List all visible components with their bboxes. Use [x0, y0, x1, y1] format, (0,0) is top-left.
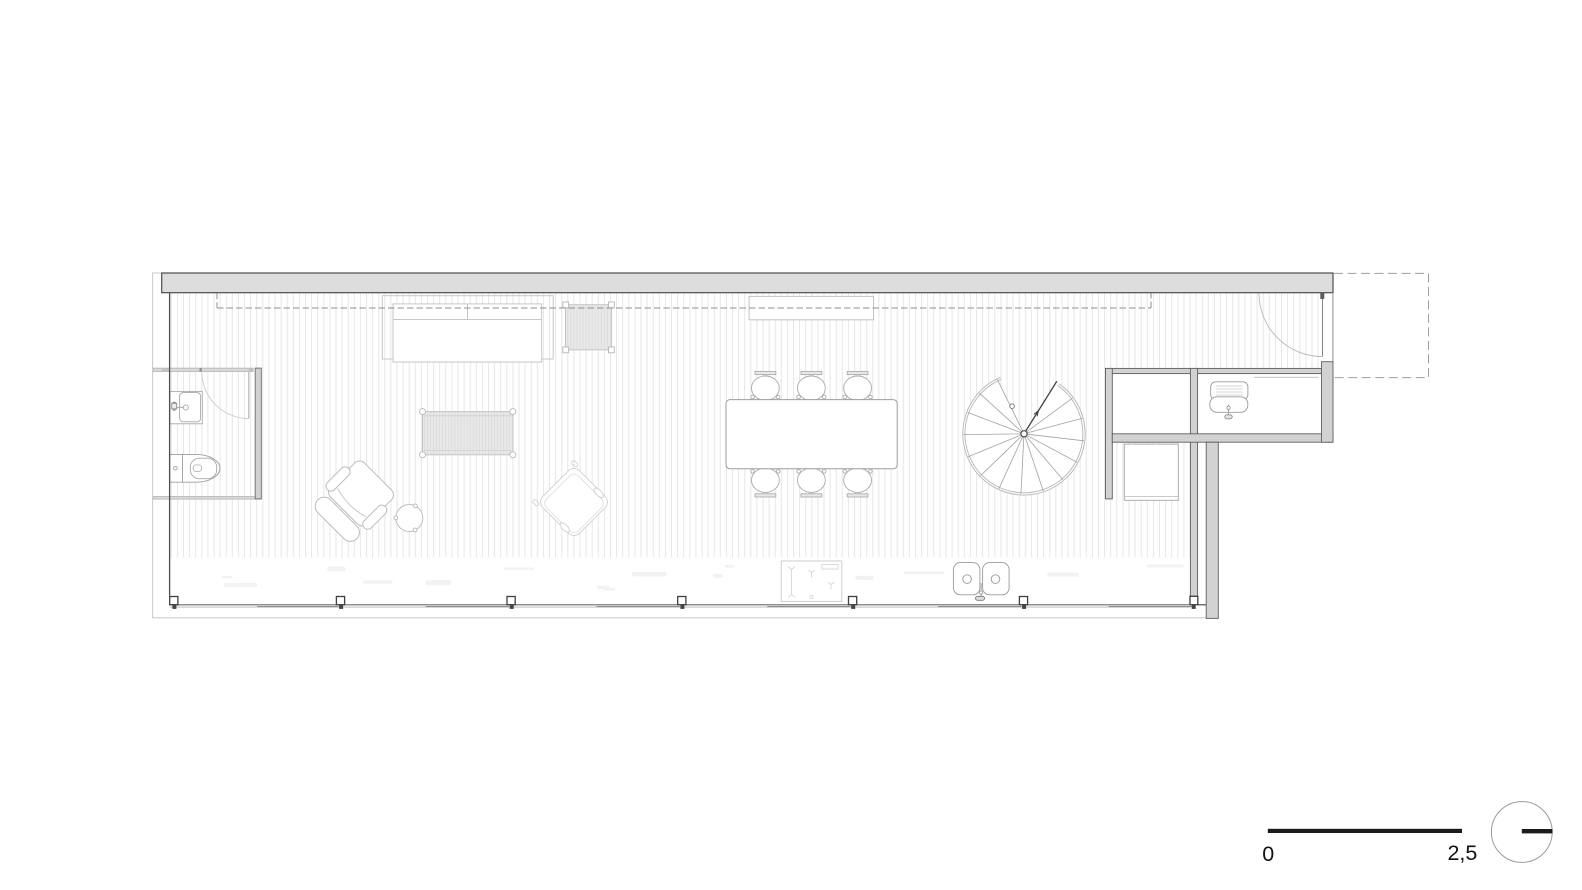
svg-text:0: 0 [1262, 842, 1274, 866]
svg-text:2,5: 2,5 [1447, 841, 1477, 865]
